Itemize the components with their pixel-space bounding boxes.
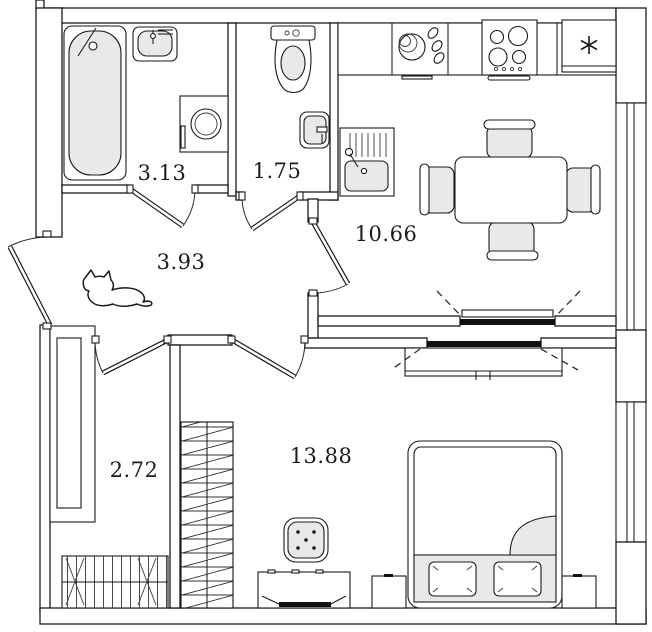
corridor-door	[92, 336, 171, 373]
coat-rack	[62, 556, 168, 608]
pouf	[284, 518, 328, 562]
room-label-corridor: 2.72	[110, 458, 159, 482]
kitchen-window	[616, 103, 646, 330]
entrance-door	[8, 231, 51, 329]
toilet	[271, 26, 315, 93]
kitchen-sink	[340, 128, 394, 196]
dining-table	[455, 157, 567, 223]
bathroom-door	[127, 185, 198, 226]
bathroom-sink	[133, 27, 177, 61]
built-in-closet	[50, 326, 95, 522]
pillow	[429, 562, 476, 596]
nightstand-right	[562, 574, 596, 608]
stove	[482, 20, 537, 80]
wardrobe	[181, 422, 233, 608]
room-label-bathroom: 3.13	[138, 161, 187, 185]
bedroom-window	[616, 402, 646, 542]
dining-set	[420, 120, 600, 260]
room-label-kitchen: 10.66	[355, 222, 418, 246]
bedroom-door	[228, 336, 308, 377]
room-label-bedroom: 13.88	[290, 444, 353, 468]
toilet-sink	[300, 112, 329, 148]
kitchen-door	[309, 218, 348, 296]
fridge	[562, 20, 616, 72]
washing-machine	[180, 96, 228, 152]
pillow	[494, 562, 541, 596]
cat-drawing	[83, 270, 152, 306]
room-label-hallway: 3.93	[157, 250, 206, 274]
toilet-door	[239, 192, 303, 229]
bathtub	[64, 26, 126, 180]
sliding-partition	[391, 291, 580, 380]
room-label-toilet: 1.75	[253, 159, 302, 183]
bed	[408, 441, 562, 608]
floor-plan-drawing	[0, 0, 652, 632]
tv-console	[258, 570, 350, 608]
nightstand-left	[372, 574, 406, 608]
floor-plan: 3.13 1.75 10.66 3.93 2.72 13.88	[0, 0, 652, 632]
